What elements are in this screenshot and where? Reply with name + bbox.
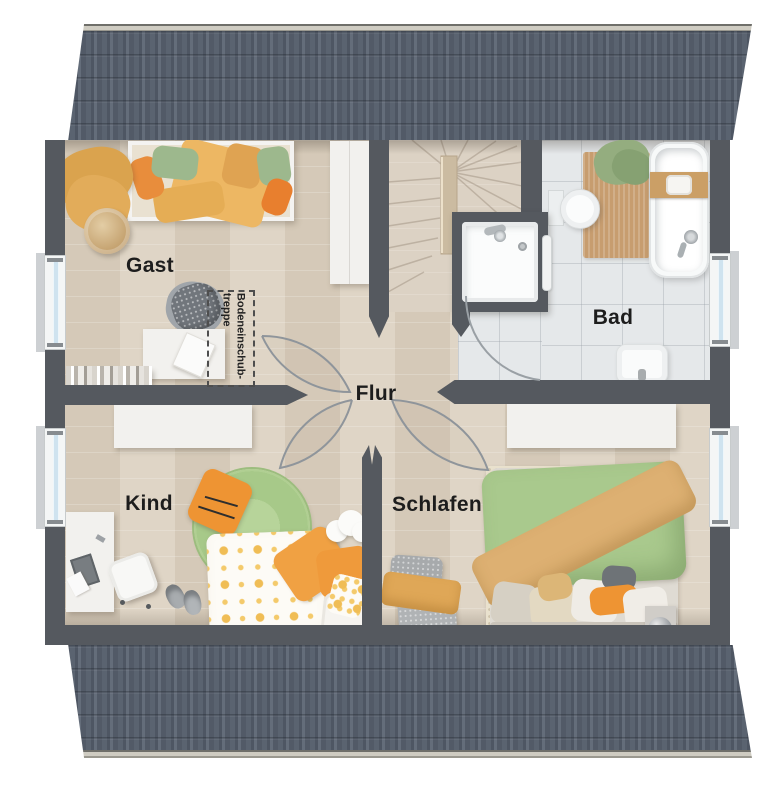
window-glass [718, 433, 724, 522]
kids-wall-shelf [114, 404, 252, 448]
shower-drain-icon [518, 242, 527, 251]
roof-top [62, 24, 752, 140]
washbasin [616, 344, 668, 384]
shower-head-icon [494, 230, 506, 242]
guest-bed [128, 141, 294, 221]
bathtub [649, 142, 709, 278]
window-cap [47, 258, 63, 262]
window-cap [47, 343, 63, 347]
attic-stairs-annotation-line2: treppe [219, 293, 233, 379]
shower-tray [462, 222, 538, 302]
bathtub-faucet-icon [684, 230, 698, 244]
guest-pillow-green-left [150, 145, 199, 182]
kids-desk-eraser [95, 534, 105, 543]
bathroom-tile-floor-entry [458, 300, 542, 382]
window-cap [712, 256, 728, 260]
kids-floor-pillow-strap [205, 496, 238, 507]
window-cap [712, 431, 728, 435]
guest-wardrobe [330, 141, 369, 284]
wall-kind-schlafen [362, 445, 382, 625]
exterior-wall-bottom [45, 625, 730, 645]
attic-stairs-annotation: Bodeneinschub- treppe [219, 293, 248, 379]
window-bad [709, 253, 731, 347]
window-schlafen [709, 428, 731, 527]
wall-bad-schlafen [437, 380, 730, 404]
bathtub-caddy-towel [666, 175, 692, 195]
window-glass [53, 433, 59, 522]
window-cap [712, 520, 728, 524]
window-cap [47, 431, 63, 435]
floorplan: Bodeneinschub- treppe Gast Bad Flur Kind… [0, 0, 775, 786]
window-cap [47, 520, 63, 524]
kids-floor-pillow-strap [198, 506, 235, 520]
wall-gast-stairs [369, 140, 389, 338]
bedroom-sideboard [507, 404, 676, 448]
kids-chair-wheel [146, 604, 151, 609]
roof-ridge [62, 750, 752, 758]
window-glass [718, 258, 724, 342]
window-kind [44, 428, 66, 527]
window-sill [730, 251, 739, 349]
guest-wardrobe-seam [349, 141, 350, 284]
shower-towel-bar [543, 236, 551, 290]
wall-bad-west [521, 140, 542, 217]
room-label-kind: Kind [125, 492, 173, 516]
room-label-bad: Bad [593, 306, 634, 330]
roof-tiles [62, 645, 752, 751]
room-label-gast: Gast [126, 254, 174, 278]
window-gast [44, 255, 66, 350]
kids-desk [66, 512, 114, 612]
kids-chair-wheel [120, 600, 125, 605]
wall-gast-kind [45, 385, 308, 405]
room-label-flur: Flur [356, 382, 397, 406]
window-glass [53, 260, 59, 345]
guest-book-shelf [66, 366, 152, 386]
window-sill [730, 426, 739, 529]
roof-tiles [62, 31, 752, 140]
toilet-bowl [560, 189, 600, 229]
guest-basket [84, 208, 130, 254]
room-label-schlafen: Schlafen [392, 493, 482, 517]
attic-stairs-annotation-line1: Bodeneinschub- [233, 293, 247, 379]
washbasin-faucet-icon [638, 369, 646, 381]
window-cap [712, 340, 728, 344]
roof-bottom [62, 645, 752, 758]
